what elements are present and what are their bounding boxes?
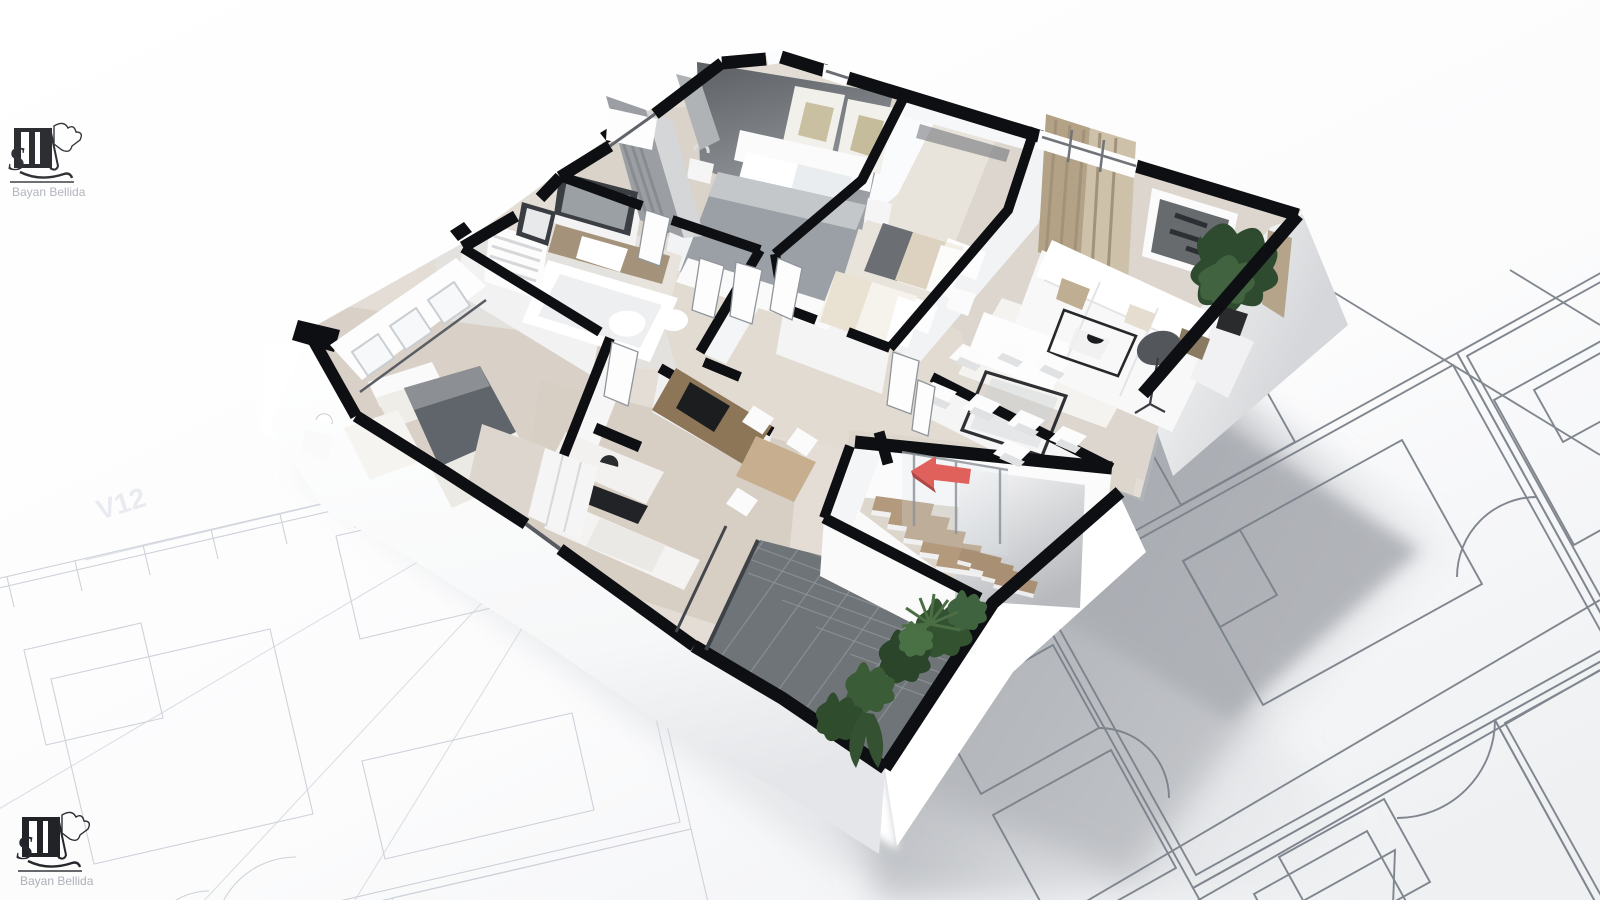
svg-text:Bayan Bellida: Bayan Bellida <box>12 185 86 199</box>
svg-text:Bayan Bellida: Bayan Bellida <box>20 874 94 888</box>
